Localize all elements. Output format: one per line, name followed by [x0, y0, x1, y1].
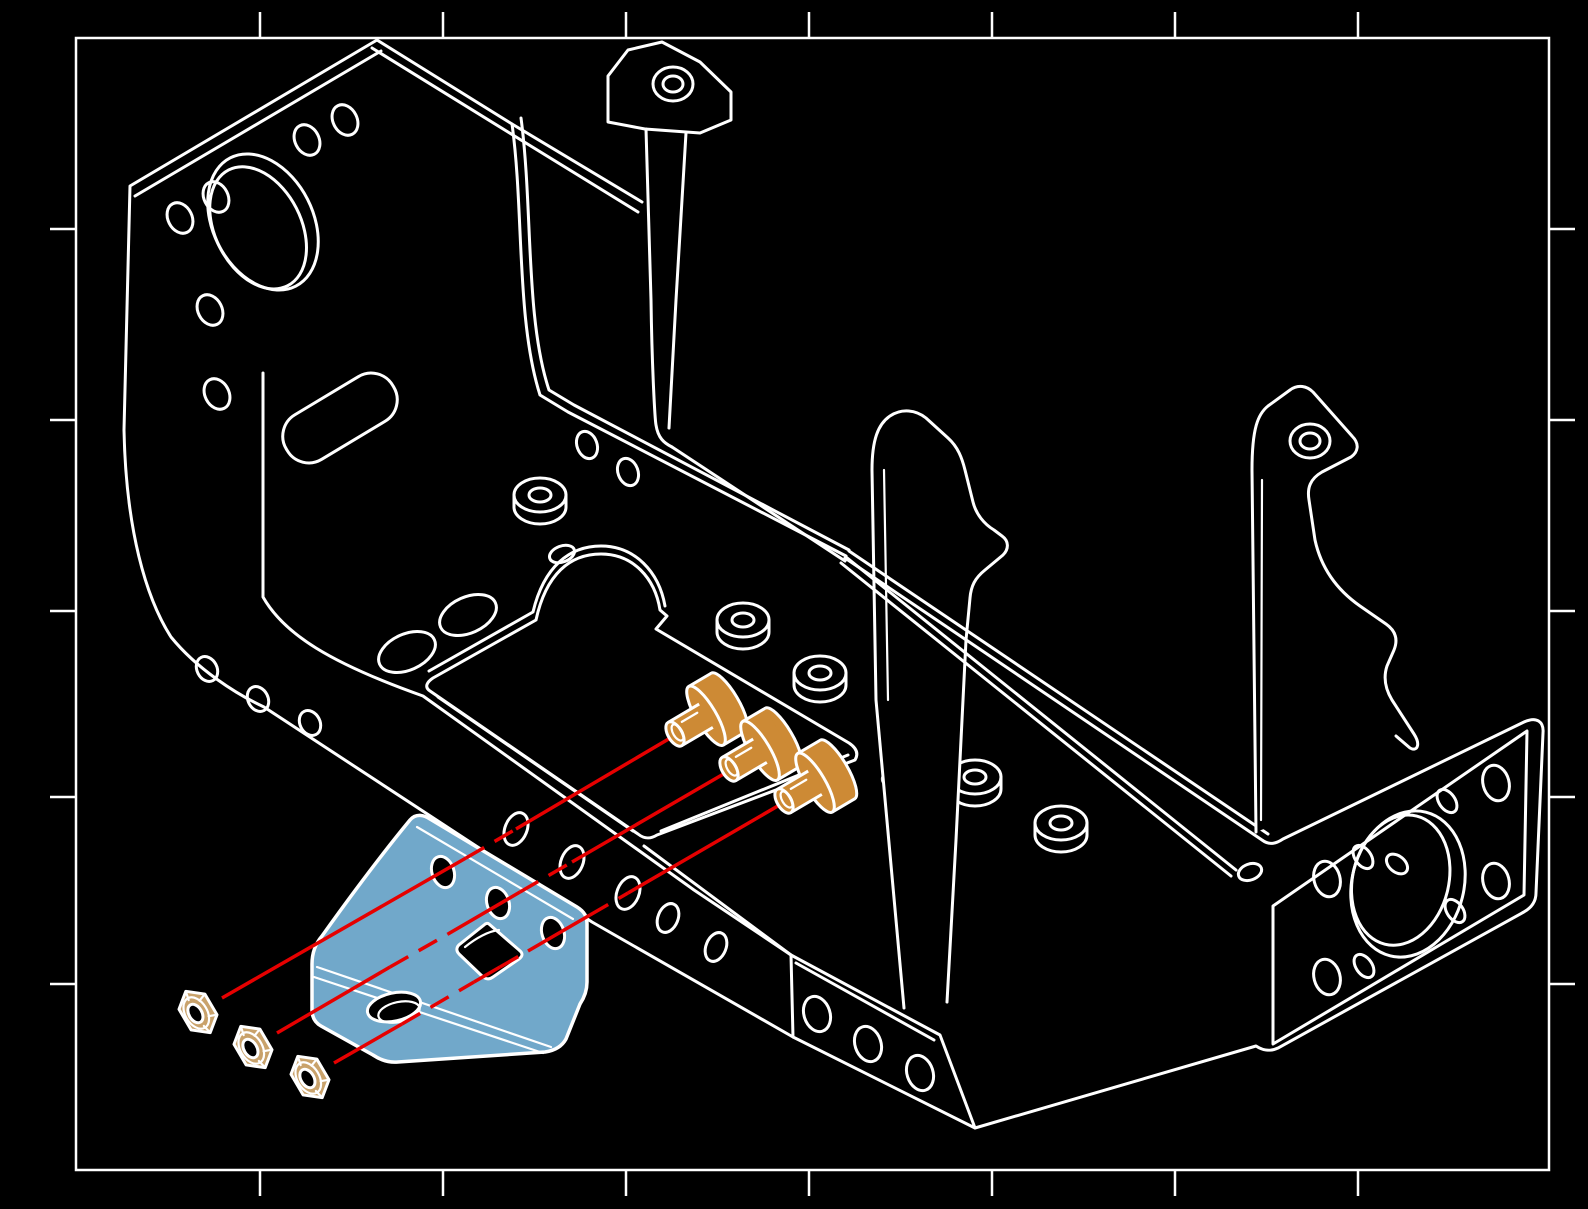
plate-holes: [162, 100, 406, 739]
hole: [295, 707, 325, 739]
hole: [192, 290, 228, 329]
nut: [285, 1049, 335, 1106]
nut: [173, 984, 223, 1041]
standoff: [1035, 806, 1087, 852]
hole: [614, 455, 642, 488]
center-blade: [872, 410, 1007, 1008]
technical-drawing: [0, 0, 1588, 1209]
hole: [198, 177, 234, 216]
assembly-line-segment: [590, 893, 628, 915]
slot-cutout: [273, 364, 406, 472]
wall-hole: [701, 929, 731, 964]
top-tab: [608, 42, 845, 561]
wall-hole: [653, 900, 683, 935]
right-tab: [1252, 386, 1418, 832]
hole: [372, 623, 441, 680]
large-hole: [186, 135, 340, 309]
assembly-line-segment: [516, 737, 672, 829]
hole: [327, 100, 363, 139]
hole: [162, 198, 198, 237]
hole: [1236, 860, 1264, 883]
hole: [289, 120, 325, 159]
standoff: [514, 478, 566, 524]
drawing-canvas: [0, 0, 1588, 1209]
nut: [228, 1019, 278, 1076]
hole: [573, 428, 601, 461]
hole: [199, 374, 235, 413]
standoff: [794, 656, 846, 702]
standoff: [717, 603, 769, 649]
